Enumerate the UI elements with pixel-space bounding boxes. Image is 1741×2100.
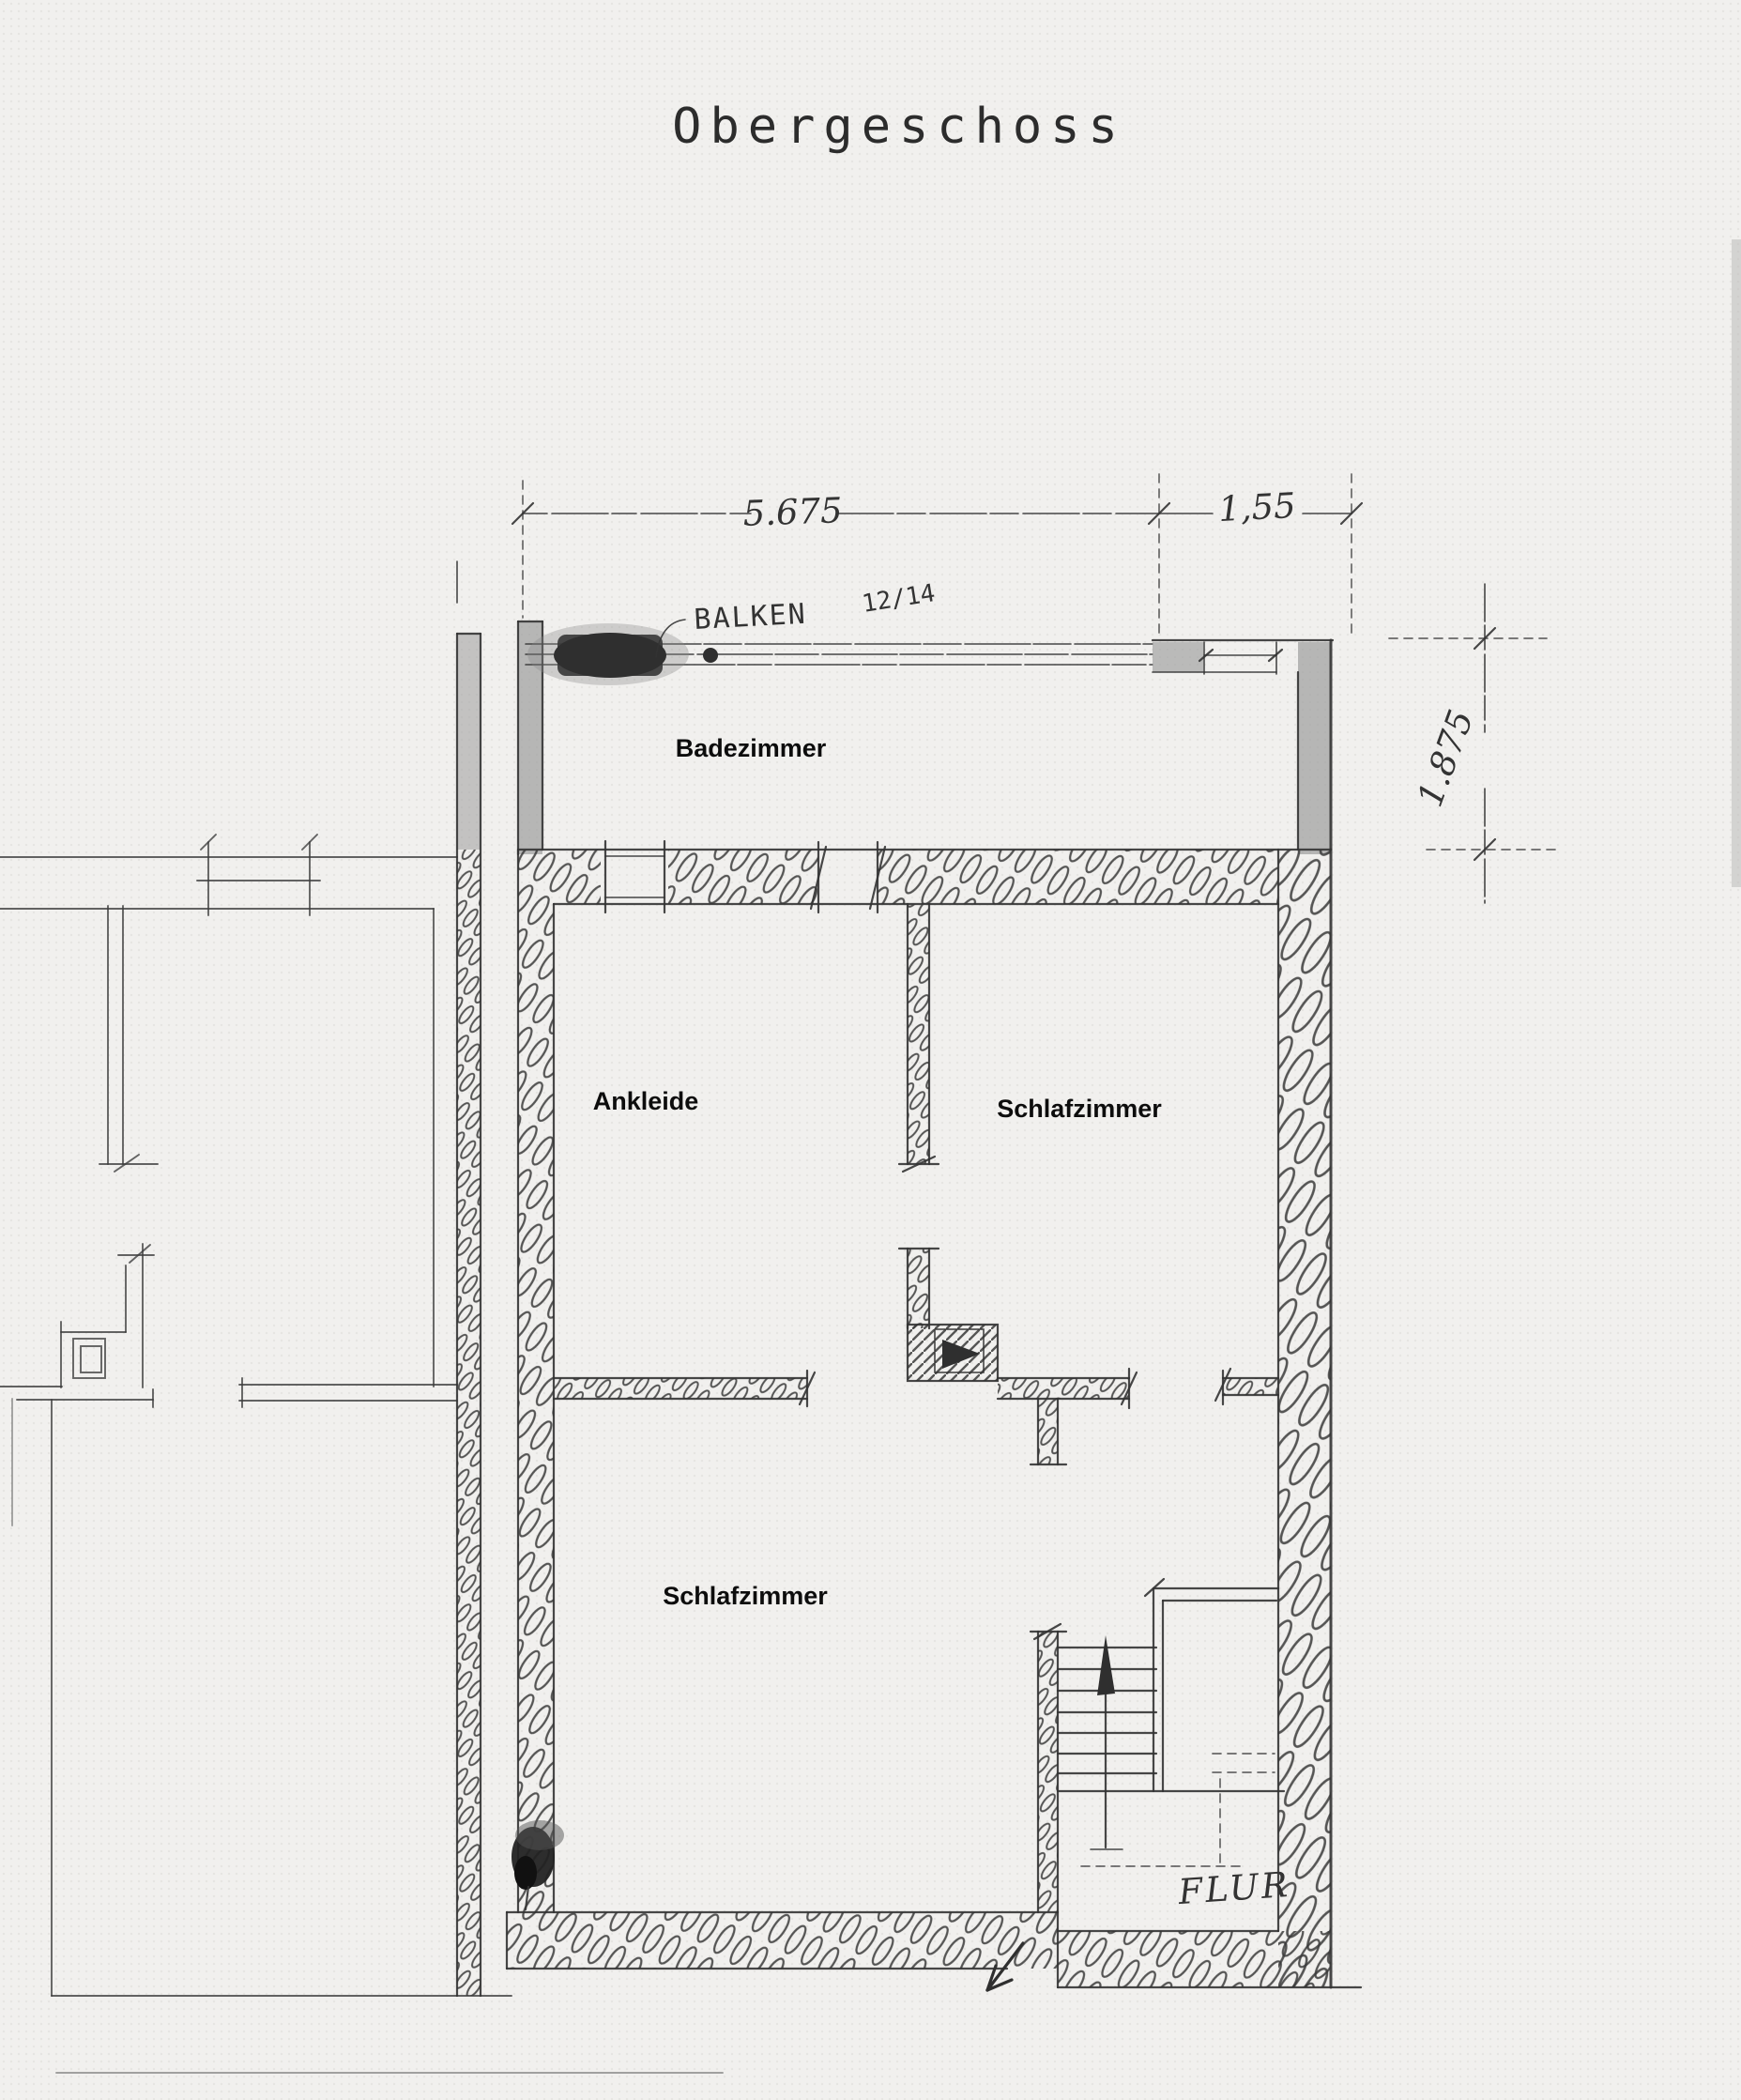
dimension-width-left: 5.675 [742, 490, 843, 534]
party-wall [457, 561, 481, 1996]
scanned-floor-plan-page: Obergeschoss [0, 0, 1741, 2100]
room-label-flur: FLUR [1176, 1864, 1291, 1912]
shaft-fixture [73, 1339, 105, 1378]
dimension-top: 5.675 1,55 [512, 474, 1362, 638]
page-title: Obergeschoss [672, 99, 1126, 155]
wall-left-outer [518, 850, 554, 1912]
partition-detail [61, 1244, 154, 1387]
room-label-ankleide: Ankleide [593, 1087, 699, 1115]
dimension-depth-right: 1.875 [1410, 705, 1482, 812]
chimney-block [908, 1325, 998, 1381]
window-symbol [197, 835, 320, 915]
room-label-schlafzimmer-right: Schlafzimmer [997, 1095, 1162, 1123]
wall-stair-west [1031, 1399, 1066, 1912]
staircase [1058, 1579, 1284, 1866]
room-label-badezimmer: Badezimmer [676, 734, 827, 762]
room-label-schlafzimmer-lower: Schlafzimmer [663, 1582, 828, 1610]
wall-band-middle [518, 841, 1331, 912]
room-labels: Badezimmer Ankleide Schlafzimmer Schlafz… [593, 734, 1291, 1912]
wall-ankleide-bottom [554, 1371, 815, 1406]
dimension-width-right: 1,55 [1217, 485, 1297, 529]
wall-right-outer [1278, 850, 1331, 1987]
adjacent-building-outline [0, 561, 723, 2073]
scan-edge-shadow [1732, 239, 1741, 887]
wall-bottom [507, 1912, 1361, 1987]
floor-plan-drawing: Obergeschoss [0, 0, 1741, 2100]
beam-position-dot [703, 648, 718, 663]
bathroom-walls [518, 621, 1333, 854]
drawing-title: Obergeschoss [672, 99, 1126, 155]
beam-annotation: BALKEN 12/14 [656, 579, 937, 657]
dimension-right: 1.875 [1389, 584, 1558, 903]
stair-direction-arrow [1081, 1635, 1241, 1866]
beam-size-label: 12/14 [860, 579, 937, 619]
wall-divider-ankleide-schlafzimmer [899, 904, 939, 1328]
beam-label: BALKEN [694, 598, 808, 636]
